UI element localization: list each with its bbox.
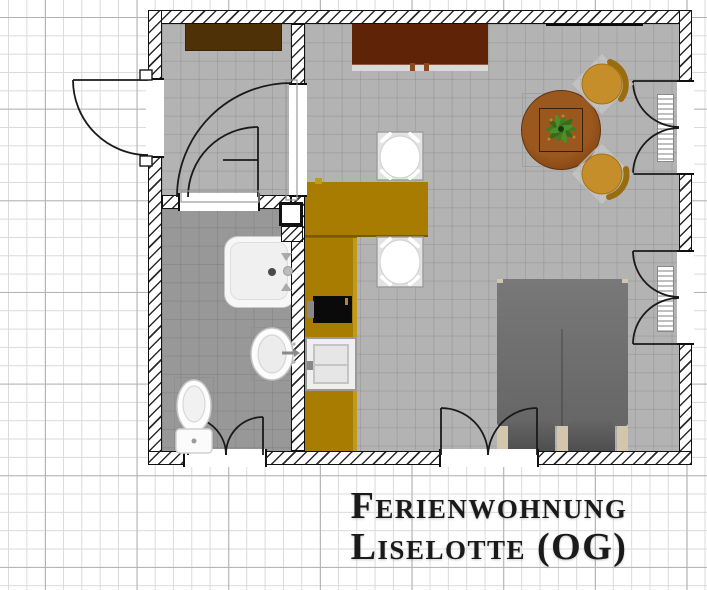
plan-title-line-2: Liselotte (OG) (278, 527, 700, 568)
bedroom-window-opening (439, 449, 539, 467)
double-bed (497, 279, 628, 455)
sideboard-knob (424, 63, 429, 71)
kitchen-sink-handle (307, 361, 313, 370)
wall-top (148, 10, 692, 24)
window-opening-right-1 (677, 80, 694, 175)
plan-title: Ferienwohnung Liselotte (OG) (278, 486, 700, 568)
radiator-icon (657, 94, 674, 162)
dining-table-inner-square (539, 108, 583, 152)
hall-living-door-opening (289, 83, 307, 197)
entrance-door-swing (73, 80, 148, 155)
stove-icon (313, 296, 352, 323)
toilet-frame (174, 377, 214, 455)
plan-title-line-1: Ferienwohnung (278, 486, 700, 527)
sideboard (352, 20, 488, 64)
entrance-door-opening (146, 78, 164, 158)
duct-wall-step (281, 226, 303, 242)
bed-pillow (568, 421, 615, 453)
duct-shaft (279, 202, 303, 226)
kitchen-sink-divider (313, 364, 349, 366)
wall-right (679, 10, 692, 465)
sideboard-knob (410, 63, 415, 71)
bed-corner (497, 279, 503, 283)
floor-plan-canvas: Ferienwohnung Liselotte (OG) (0, 0, 707, 590)
bathroom-door-opening (183, 449, 267, 467)
shower-tray-icon (224, 236, 296, 308)
breakfast-bar (305, 182, 428, 237)
radiator-icon (657, 266, 674, 332)
kitchen-sink-icon (305, 337, 357, 391)
wardrobe (185, 20, 282, 51)
window-opening-right-2 (677, 250, 694, 345)
stove-handle (307, 301, 314, 318)
bed-corner (622, 279, 628, 283)
hall-bathroom-door-opening (178, 193, 260, 211)
shower-tray-inner (230, 242, 288, 300)
sideboard-front-edge (352, 64, 488, 71)
bed-crease (561, 329, 563, 426)
